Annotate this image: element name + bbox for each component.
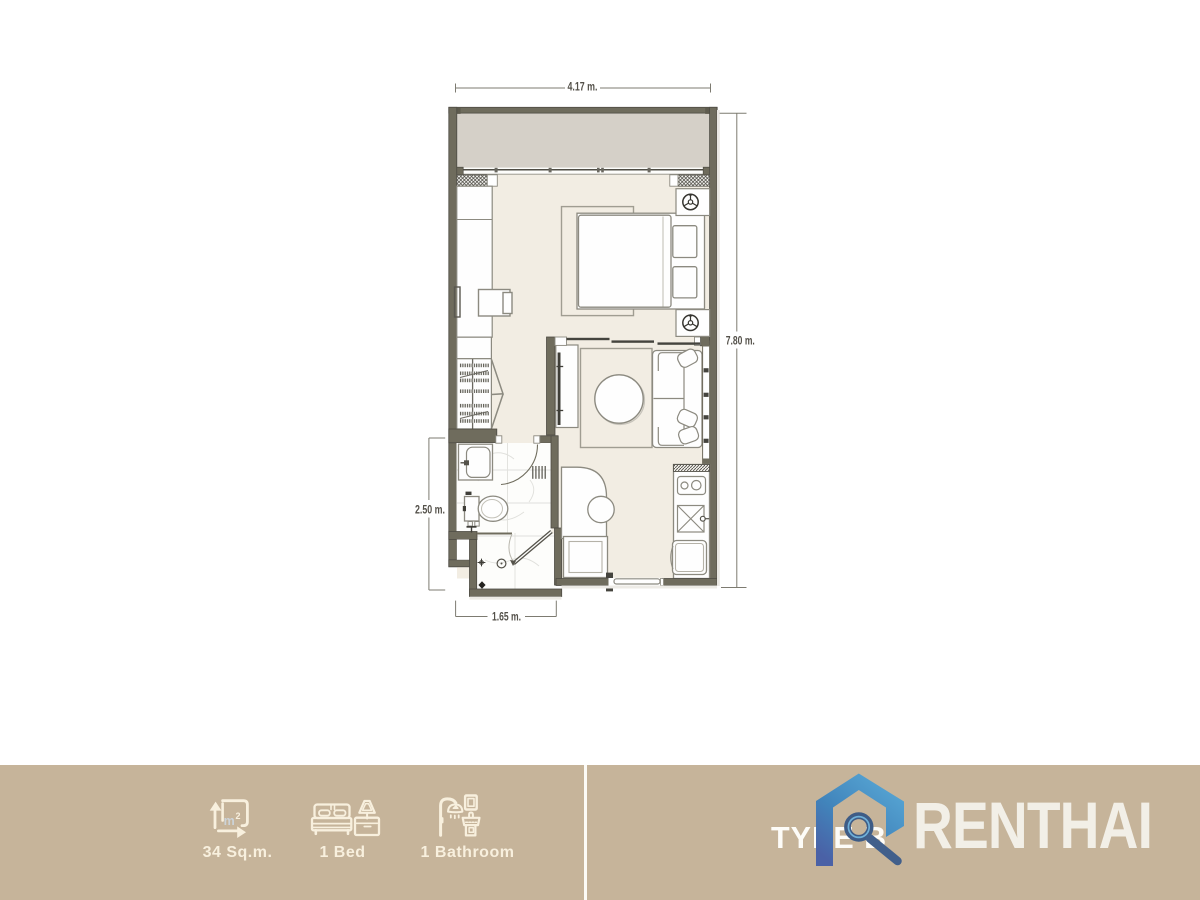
svg-text:1.65 m.: 1.65 m. [492,611,521,623]
svg-text:m: m [224,814,235,828]
svg-text:4.17 m.: 4.17 m. [568,82,598,94]
svg-text:7.80 m.: 7.80 m. [726,335,755,347]
svg-text:2.50 m.: 2.50 m. [415,504,445,516]
svg-text:2: 2 [236,811,241,821]
